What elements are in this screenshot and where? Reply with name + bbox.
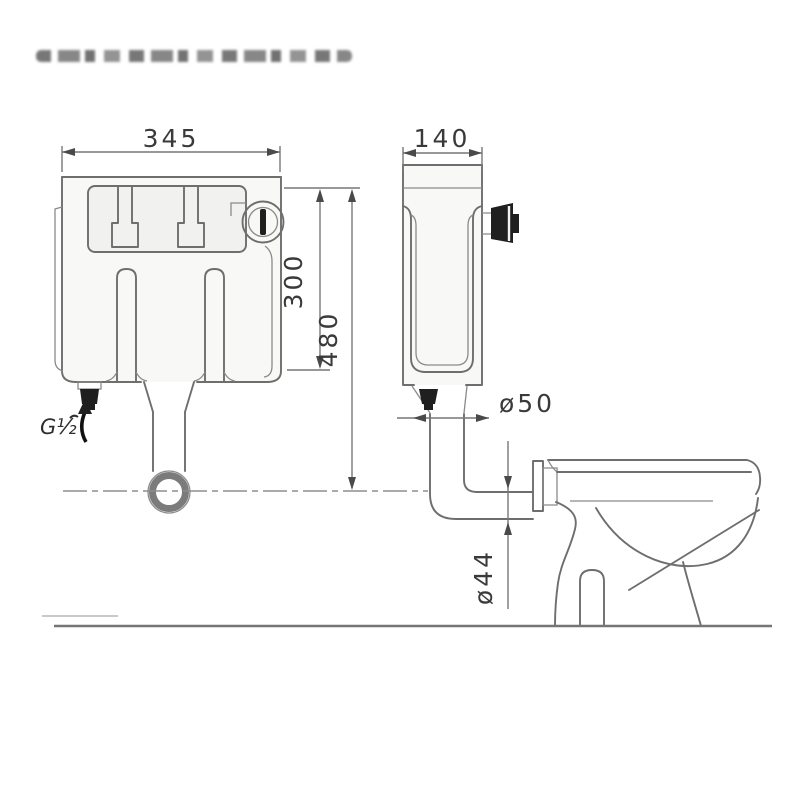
inspection-knob-side: [482, 203, 519, 243]
inlet-valve-body: [78, 382, 101, 389]
dimension-side-depth: 140: [403, 124, 482, 171]
knob-neck: [482, 213, 491, 234]
spud-ring-outer: [533, 461, 543, 511]
arrow-o50-left: [413, 414, 426, 422]
pan-rim-top: [548, 460, 760, 494]
pipe-section-ring: [153, 476, 186, 509]
outlet-funnel-front: [144, 382, 194, 513]
side-body-fill: [403, 165, 482, 385]
dim-140-label: 140: [414, 124, 471, 153]
flush-pipe-stub: [153, 412, 185, 471]
arrow-480-bottom: [348, 477, 356, 490]
dim-o44-label: ø44: [469, 549, 498, 605]
cistern-side-view: [403, 165, 557, 519]
pan-bowl-underside: [596, 498, 758, 566]
knob-side-body: [491, 203, 519, 243]
arrow-140-right: [469, 149, 482, 157]
technical-drawing-page: 345 300 480 G½: [0, 0, 800, 800]
toilet-pan-profile: [548, 460, 760, 626]
dim-300-label: 300: [279, 253, 308, 310]
pan-back-pedestal: [683, 562, 701, 626]
pan-trap-diagonal: [629, 510, 759, 590]
dim-480-label: 480: [314, 311, 343, 368]
cistern-front-view: [55, 177, 428, 513]
pan-rim-left-end: [548, 460, 557, 472]
knob-slot: [260, 209, 266, 235]
pan-front-pedestal: [555, 502, 576, 626]
funnel-sides: [144, 382, 194, 412]
inlet-thread-annotation: G½: [40, 399, 92, 442]
flush-elbow-inner: [464, 414, 533, 492]
inlet-valve-nut: [80, 389, 99, 404]
dim-345-label: 345: [143, 124, 200, 153]
dimension-front-width: 345: [62, 124, 280, 172]
inlet-arrow-shaft: [82, 412, 86, 442]
cistern-installation-drawing: 345 300 480 G½: [0, 0, 800, 800]
arrow-345-left: [62, 148, 75, 156]
inlet-valve-front: [78, 382, 101, 410]
flush-elbow-outer: [430, 414, 533, 519]
outlet-nut-side: [419, 389, 438, 404]
dimension-heights: 300 480: [279, 188, 360, 490]
arrow-o50-right: [476, 414, 489, 422]
dimension-outlet-pipe: ø44: [469, 441, 512, 609]
arrow-o44-top: [504, 476, 512, 489]
outlet-stem-side: [424, 404, 433, 410]
pan-bolt-recess: [580, 570, 604, 626]
arrow-480-top: [348, 189, 356, 202]
inspection-knob-front: [243, 202, 284, 243]
arrow-o44-bottom: [504, 522, 512, 535]
outlet-side: [412, 386, 467, 413]
spud-ring-inner: [543, 468, 557, 505]
dim-o50-label: ø50: [499, 389, 555, 418]
arrow-345-right: [267, 148, 280, 156]
arrow-300-top: [316, 189, 324, 202]
inlet-thread-label: G½: [40, 415, 77, 439]
